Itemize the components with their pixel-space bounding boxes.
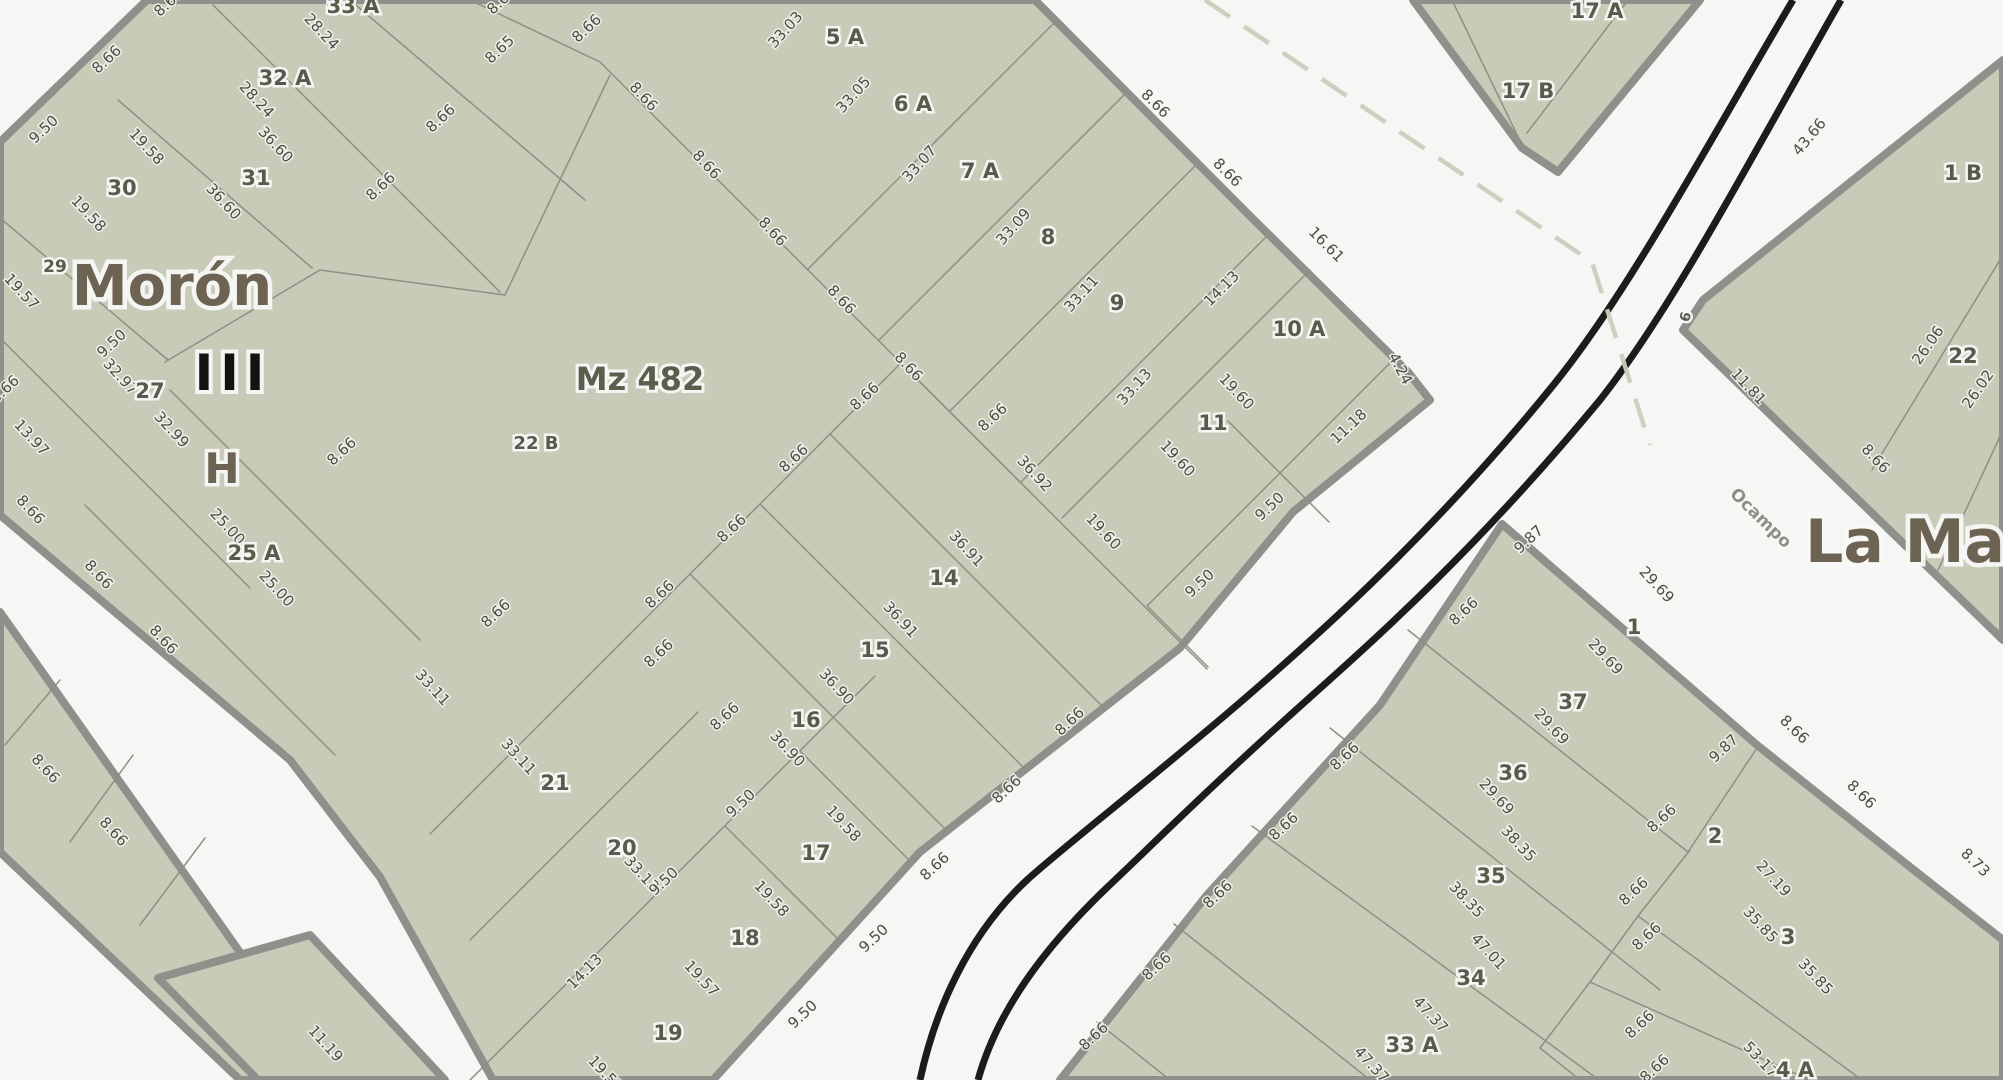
parcel-number-label: 5 A [826, 25, 865, 49]
parcel-number-label: 22 B [513, 433, 558, 454]
measurement-label: 29.69 [1635, 563, 1677, 607]
parcel-number-label: 36 [1498, 761, 1527, 785]
parcel-number-label: 4 A [1776, 1058, 1815, 1080]
parcel-number-label: 25 A [228, 541, 282, 565]
parcel-number-label: 19 [653, 1021, 682, 1045]
parcel-number-label: 1 B [1944, 161, 1982, 185]
parcel-number-label: 17 B [1502, 79, 1555, 103]
parcel-number-label: 3 [1781, 925, 1796, 949]
block-northeast[interactable] [1413, 0, 1700, 172]
region-name-label: H [204, 444, 239, 493]
parcel-number-label: 32 A [259, 66, 313, 90]
region-name-label: III [195, 344, 272, 402]
measurement-label: 16.61 [1305, 223, 1348, 266]
measurement-label: 8.66 [1776, 711, 1813, 747]
parcel-number-label: 37 [1558, 690, 1587, 714]
parcel-number-label: 33 A [1386, 1033, 1440, 1057]
parcel-number-label: 9 [1110, 291, 1125, 315]
measurement-label: 8.66 [1843, 776, 1880, 812]
parcel-number-label: 35 [1476, 864, 1505, 888]
parcel-number-label: 29 [43, 257, 67, 277]
parcel-number-label: 15 [860, 638, 889, 662]
parcel-number-label: 7 A [961, 159, 1000, 183]
measurement-label: 9.50 [784, 996, 821, 1032]
parcel-number-label: 18 [730, 926, 759, 950]
parcel-number-label: 20 [607, 836, 636, 860]
map-canvas[interactable]: 8.668.669.5028.2428.2436.6036.6019.5819.… [0, 0, 2003, 1080]
parcel-number-label: 22 [1948, 344, 1977, 368]
parcel-number-label: 14 [929, 566, 958, 590]
parcel-number-label: 10 A [1273, 317, 1327, 341]
parcel-number-label: 27 [135, 379, 164, 403]
parcel-number-label: 6 A [894, 92, 933, 116]
parcel-number-label: 16 [791, 708, 820, 732]
parcel-number-label: 31 [241, 166, 270, 190]
parcel-number-label: 30 [107, 176, 136, 200]
measurement-label: 43.66 [1788, 115, 1829, 159]
parcel-number-label: 1 [1627, 615, 1642, 639]
parcel-number-label: 34 [1456, 966, 1485, 990]
region-name-label: La Ma [1805, 507, 2003, 577]
parcel-number-label: 17 [801, 841, 830, 865]
parcel-number-label: 21 [540, 771, 569, 795]
parcel-number-label: 8 [1041, 225, 1056, 249]
parcel-number-label: 33 A [327, 0, 381, 18]
street-name-label: Ocampo [1726, 484, 1796, 552]
measurement-label: 8.73 [1957, 844, 1994, 880]
region-name-label: Mz 482 [576, 360, 704, 398]
cadastral-map-svg[interactable]: 8.668.669.5028.2428.2436.6036.6019.5819.… [0, 0, 2003, 1080]
parcel-number-label: 2 [1708, 824, 1723, 848]
region-name-label: Morón [72, 254, 272, 319]
parcel-number-label: 11 [1198, 411, 1227, 435]
parcel-number-label: 17 A [1571, 0, 1625, 23]
measurement-label: 9.50 [855, 920, 892, 956]
